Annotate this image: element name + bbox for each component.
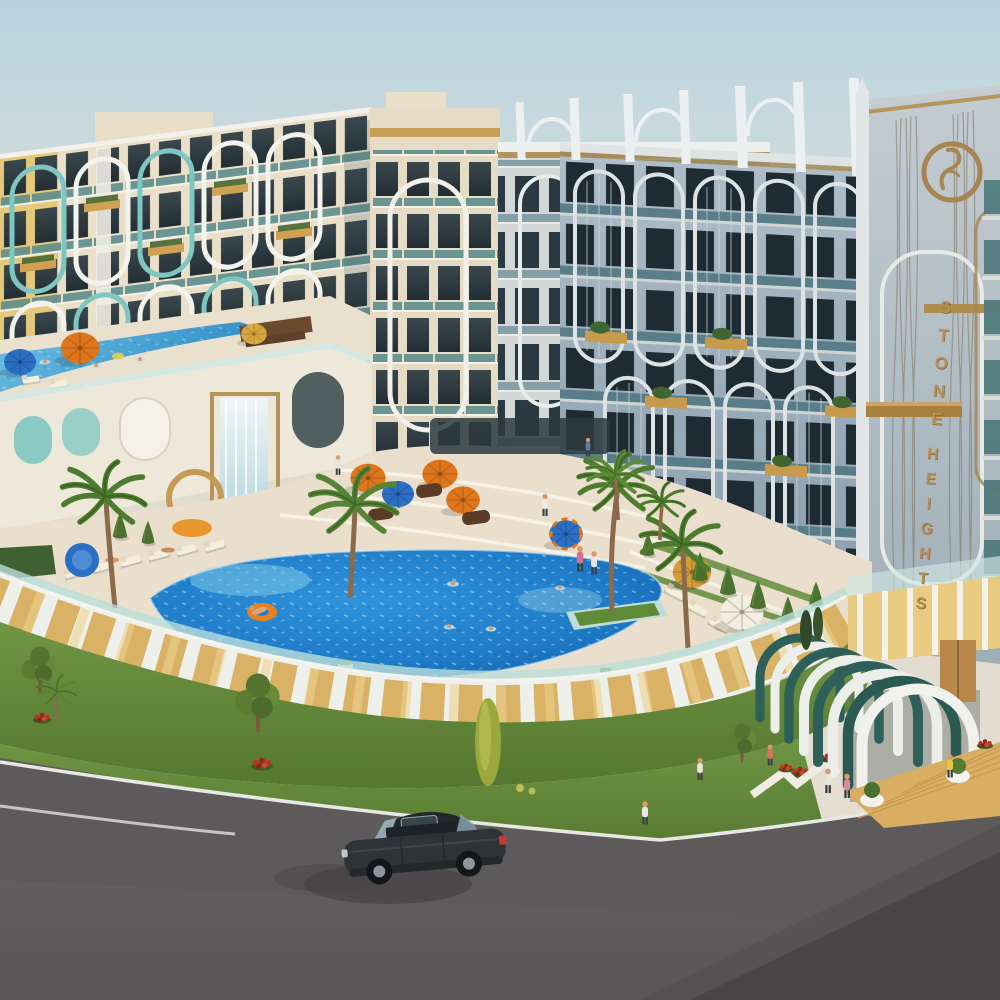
lobby-glass-doors	[430, 418, 610, 454]
architectural-render-scene: STONE HEIGHTS	[0, 0, 1000, 1000]
orange-pool-float	[247, 603, 277, 621]
